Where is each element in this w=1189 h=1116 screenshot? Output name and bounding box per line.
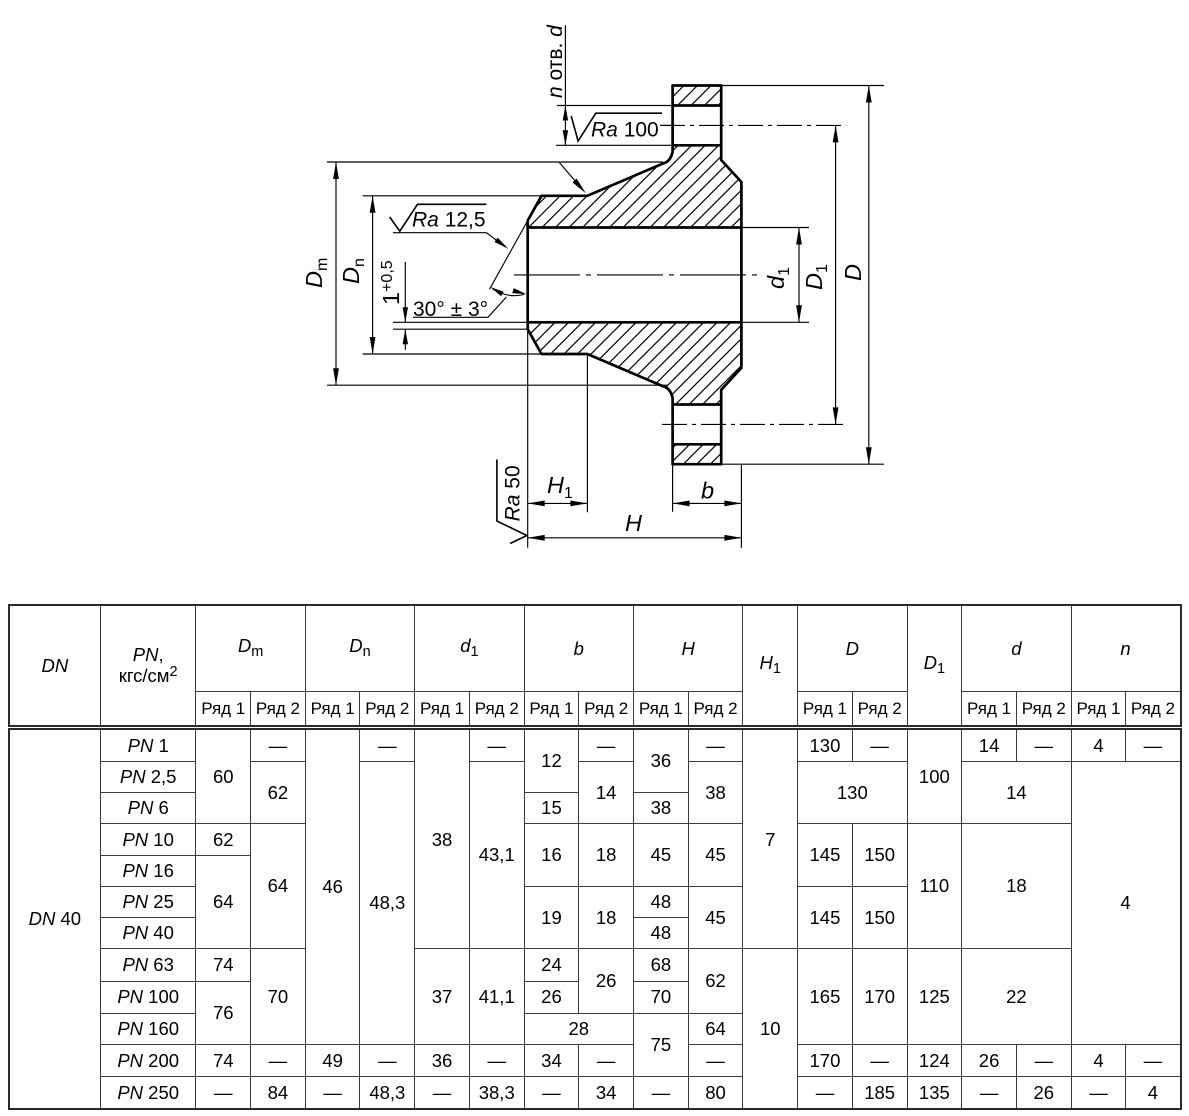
svg-text:b: b	[701, 478, 714, 504]
svg-text:Dn: Dn	[338, 258, 368, 284]
svg-text:D1: D1	[801, 264, 831, 290]
svg-text:Ra 100: Ra 100	[591, 119, 659, 142]
svg-text:H: H	[625, 510, 642, 536]
svg-text:Ra 12,5: Ra 12,5	[412, 209, 486, 232]
svg-text:d1: d1	[763, 267, 793, 289]
svg-text:D: D	[840, 264, 866, 281]
svg-text:Ra 50: Ra 50	[501, 465, 524, 521]
svg-text:Dm: Dm	[301, 258, 331, 288]
svg-text:H1: H1	[547, 472, 573, 502]
svg-text:n отв. d: n отв. d	[544, 24, 567, 98]
svg-text:1+0,5: 1+0,5	[378, 260, 404, 305]
svg-text:30° ± 3°: 30° ± 3°	[413, 298, 488, 321]
